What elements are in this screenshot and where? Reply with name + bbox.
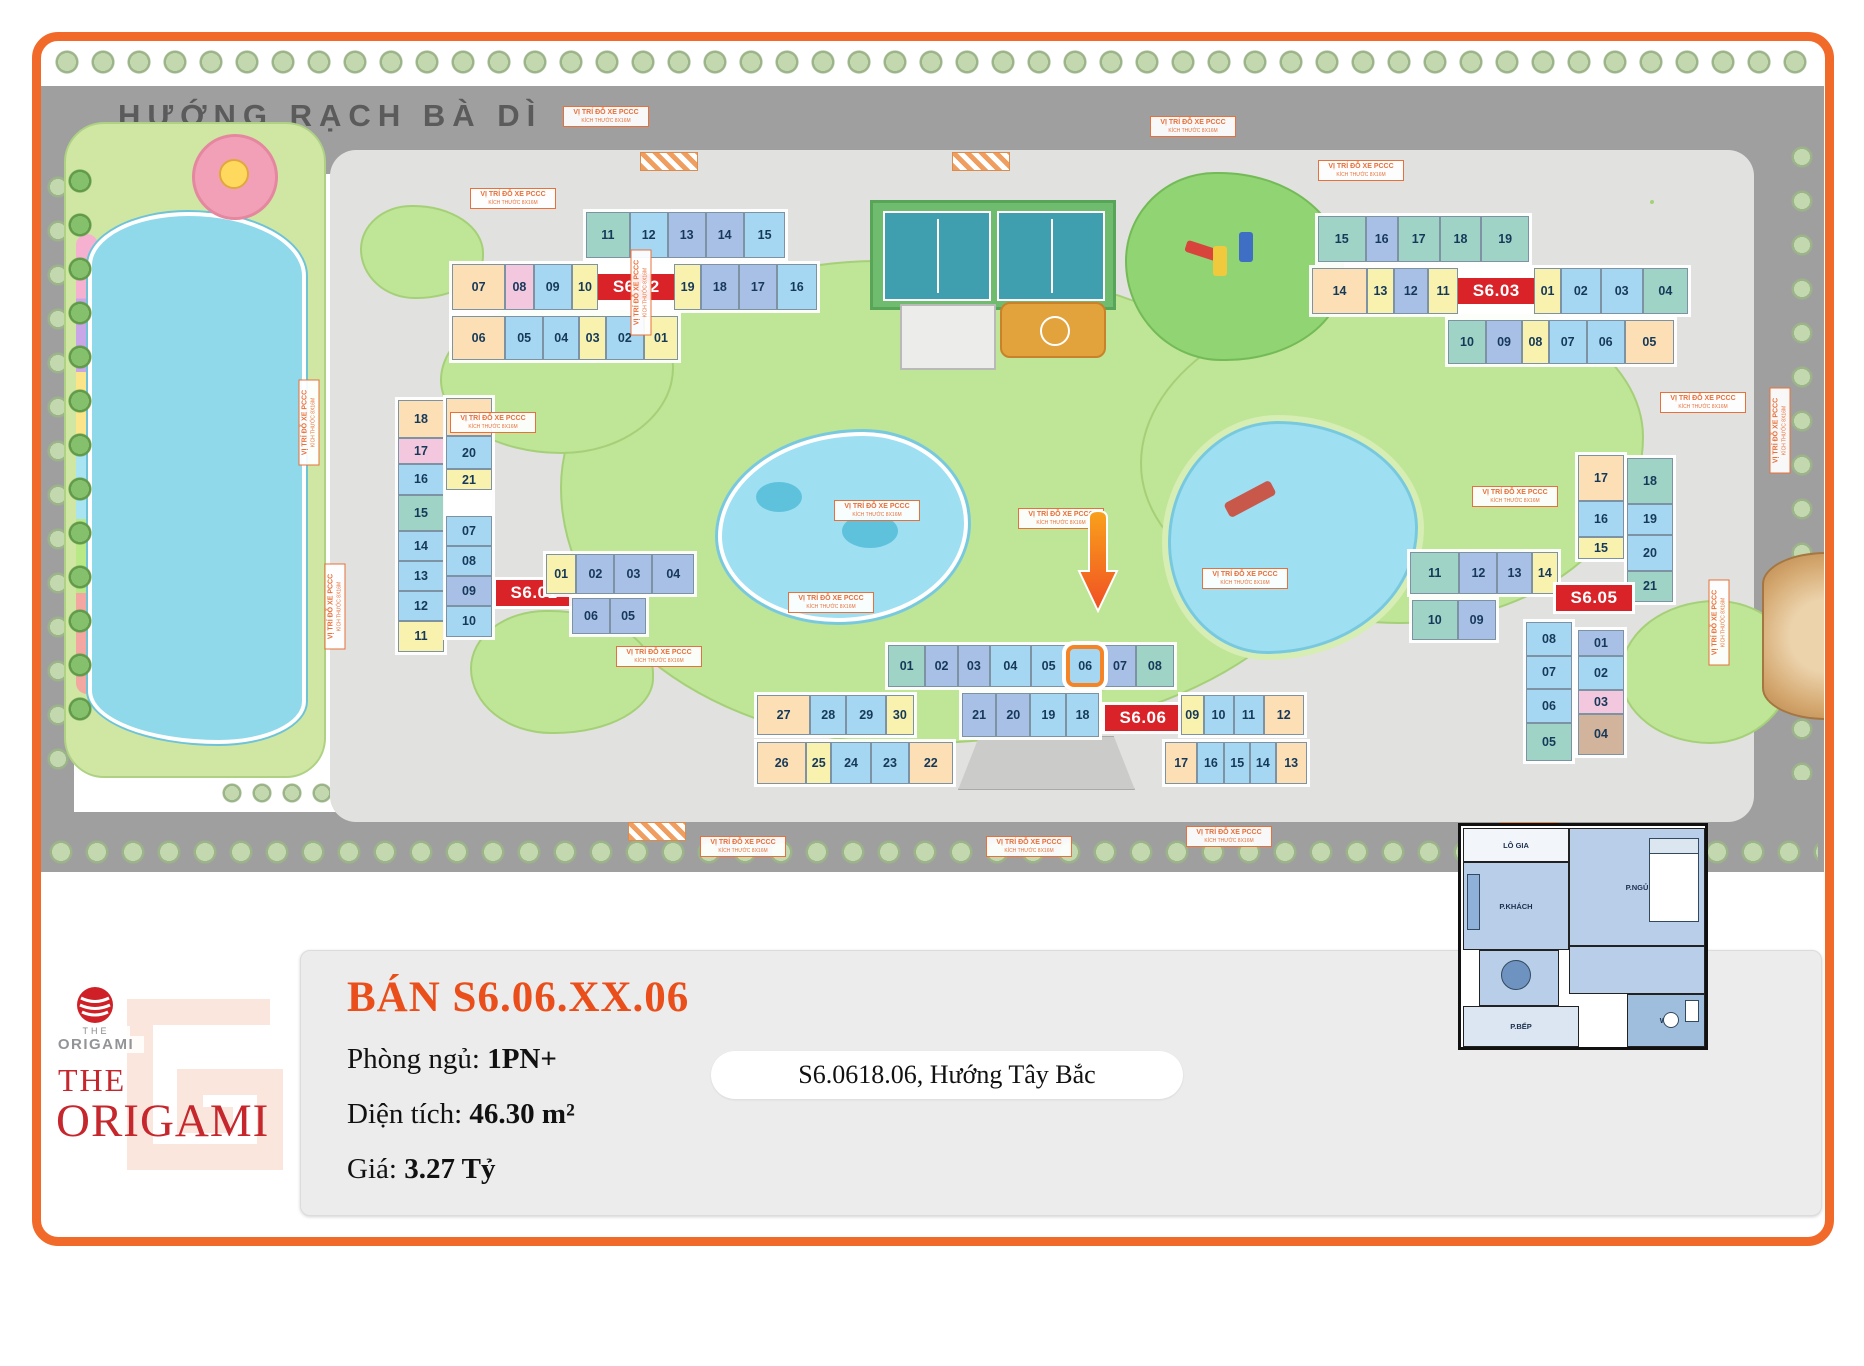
unit-S6.03-17[interactable]: 17 <box>1398 216 1440 262</box>
unit-S6.05-02[interactable]: 02 <box>1578 656 1624 690</box>
room-P.BẾP: P.BẾP <box>1463 1006 1579 1047</box>
unit-S6.02-11[interactable]: 11 <box>586 212 630 258</box>
pccc-parking-box: VỊ TRÍ ĐỖ XE PCCCKÍCH THƯỚC 8X16M <box>631 250 652 336</box>
building-s606-group-6: 1716151413 <box>1165 742 1307 784</box>
unit-S6.03-02[interactable]: 02 <box>1561 268 1601 314</box>
unit-S6.01-06[interactable]: 06 <box>572 598 610 634</box>
unit-S6.03-16[interactable]: 16 <box>1366 216 1398 262</box>
building-gap <box>446 490 492 515</box>
building-s606-group-3: S6.06 <box>1105 705 1181 731</box>
building-label-s603: S6.03 <box>1458 278 1534 304</box>
unit-S6.03-11[interactable]: 11 <box>1428 268 1458 314</box>
pccc-parking-box: VỊ TRÍ ĐỖ XE PCCCKÍCH THƯỚC 8X16M <box>1186 826 1272 847</box>
pccc-parking-box: VỊ TRÍ ĐỖ XE PCCCKÍCH THƯỚC 8X16M <box>1150 116 1236 137</box>
unit-S6.05-03[interactable]: 03 <box>1578 690 1624 714</box>
unit-S6.05-17[interactable]: 17 <box>1578 455 1624 501</box>
unit-S6.02-14[interactable]: 14 <box>706 212 744 258</box>
pccc-parking-box: VỊ TRÍ ĐỖ XE PCCCKÍCH THƯỚC 8X16M <box>1660 392 1746 413</box>
unit-S6.03-12[interactable]: 12 <box>1394 268 1428 314</box>
pccc-parking-box: VỊ TRÍ ĐỖ XE PCCCKÍCH THƯỚC 8X16M <box>1472 486 1558 507</box>
unit-S6.03-15[interactable]: 15 <box>1318 216 1366 262</box>
unit-S6.05-18[interactable]: 18 <box>1627 458 1673 504</box>
pccc-parking-box: VỊ TRÍ ĐỖ XE PCCCKÍCH THƯỚC 8X16M <box>700 836 786 857</box>
origami-logo-icon <box>76 986 114 1024</box>
unit-S6.05-14[interactable]: 14 <box>1532 552 1559 594</box>
pccc-parking-box: VỊ TRÍ ĐỖ XE PCCCKÍCH THƯỚC 8X16M <box>563 106 649 127</box>
unit-S6.06-27[interactable]: 27 <box>757 695 810 735</box>
unit-S6.03-18[interactable]: 18 <box>1440 216 1482 262</box>
unit-fields: Phòng ngủ: 1PN+Diện tích: 46.30 m²Giá: 3… <box>347 1043 575 1208</box>
unit-S6.02-18[interactable]: 18 <box>701 264 739 310</box>
unit-S6.01-12[interactable]: 12 <box>398 591 444 621</box>
unit-S6.01-21[interactable]: 21 <box>446 469 492 491</box>
building-s605-group-1: 1009 <box>1412 600 1496 640</box>
wc-sink <box>1685 1000 1699 1022</box>
unit-S6.06-06[interactable]: 06 <box>1066 645 1103 687</box>
pccc-parking-box: VỊ TRÍ ĐỖ XE PCCCKÍCH THƯỚC 8X16M <box>1709 580 1730 666</box>
building-s601-group-1: 19202107080910 <box>446 398 492 637</box>
unit-S6.02-07[interactable]: 07 <box>452 264 505 310</box>
unit-S6.05-05[interactable]: 05 <box>1526 723 1572 761</box>
unit-S6.06-16[interactable]: 16 <box>1197 742 1224 784</box>
building-s601-group-4: 0605 <box>572 598 646 634</box>
unit-S6.06-15[interactable]: 15 <box>1224 742 1250 784</box>
unit-S6.03-08[interactable]: 08 <box>1522 320 1549 364</box>
pccc-parking-box: VỊ TRÍ ĐỖ XE PCCCKÍCH THƯỚC 8X16M <box>986 836 1072 857</box>
unit-S6.01-05[interactable]: 05 <box>610 598 646 634</box>
tennis-court-1 <box>883 211 991 301</box>
unit-S6.03-14[interactable]: 14 <box>1312 268 1367 314</box>
sofa-furniture <box>1467 874 1480 930</box>
floorplan-thumbnail[interactable]: LÔ GIAP.NGỦP.KHÁCHP.ĂNP.BẾPWC <box>1458 823 1708 1050</box>
unit-S6.06-25[interactable]: 25 <box>806 742 831 784</box>
unit-S6.06-02[interactable]: 02 <box>925 645 957 687</box>
building-label-s606: S6.06 <box>1105 705 1181 731</box>
building-s606-group-0: 0102030405060708 <box>888 645 1174 687</box>
pccc-parking-box: VỊ TRÍ ĐỖ XE PCCCKÍCH THƯỚC 8X16M <box>450 412 536 433</box>
unit-S6.02-08[interactable]: 08 <box>505 264 534 310</box>
clubhouse <box>900 304 996 370</box>
unit-S6.01-08[interactable]: 08 <box>446 546 492 576</box>
unit-S6.05-06[interactable]: 06 <box>1526 689 1572 723</box>
unit-S6.06-12[interactable]: 12 <box>1264 695 1305 735</box>
site-map[interactable]: HƯỚNG RẠCH BÀ DÌ <box>40 40 1824 908</box>
unit-S6.05-08[interactable]: 08 <box>1526 622 1572 656</box>
unit-S6.06-09[interactable]: 09 <box>1181 695 1204 735</box>
unit-S6.06-29[interactable]: 29 <box>846 695 886 735</box>
unit-S6.03-01[interactable]: 01 <box>1534 268 1561 314</box>
unit-S6.06-10[interactable]: 10 <box>1204 695 1234 735</box>
road-crossing <box>952 152 1010 171</box>
unit-S6.05-13[interactable]: 13 <box>1497 552 1531 594</box>
unit-S6.05-20[interactable]: 20 <box>1627 535 1673 571</box>
field-row: Giá: 3.27 Tỷ <box>347 1153 575 1186</box>
basketball-court <box>1000 302 1106 358</box>
building-s601-group-3: 01020304 <box>546 554 694 594</box>
unit-S6.06-26[interactable]: 26 <box>757 742 806 784</box>
unit-S6.06-01[interactable]: 01 <box>888 645 925 687</box>
pccc-parking-box: VỊ TRÍ ĐỖ XE PCCCKÍCH THƯỚC 8X16M <box>299 380 320 466</box>
unit-S6.01-13[interactable]: 13 <box>398 561 444 591</box>
building-s605-group-2: 171615 <box>1578 455 1624 559</box>
building-s606-group-2: 21201918 <box>962 693 1099 737</box>
room-LÔ GIA: LÔ GIA <box>1463 828 1569 862</box>
unit-S6.03-05[interactable]: 05 <box>1625 320 1674 364</box>
room-area <box>1569 946 1705 994</box>
unit-S6.06-23[interactable]: 23 <box>871 742 909 784</box>
unit-S6.02-13[interactable]: 13 <box>668 212 706 258</box>
building-s605-group-0: 11121314 <box>1410 552 1558 594</box>
unit-S6.06-20[interactable]: 20 <box>996 693 1030 737</box>
unit-S6.02-15[interactable]: 15 <box>744 212 786 258</box>
dining-table <box>1501 960 1531 990</box>
wordmark-origami: ORIGAMI <box>56 1094 269 1148</box>
building-label-s605: S6.05 <box>1556 585 1632 611</box>
unit-S6.01-17[interactable]: 17 <box>398 438 444 463</box>
unit-S6.01-16[interactable]: 16 <box>398 464 444 495</box>
unit-S6.02-17[interactable]: 17 <box>739 264 777 310</box>
logo-small-the: THE <box>62 1026 130 1036</box>
unit-S6.01-11[interactable]: 11 <box>398 621 444 652</box>
unit-S6.05-16[interactable]: 16 <box>1578 501 1624 537</box>
tree-row-top <box>52 48 1812 82</box>
building-s601-group-0: 1817161514131211 <box>398 400 444 652</box>
unit-S6.03-19[interactable]: 19 <box>1481 216 1529 262</box>
unit-S6.01-03[interactable]: 03 <box>614 554 652 594</box>
building-s603-group-2: 100908070605 <box>1448 320 1674 364</box>
parking-ramp <box>958 736 1135 790</box>
unit-S6.02-09[interactable]: 09 <box>534 264 572 310</box>
unit-S6.05-01[interactable]: 01 <box>1578 630 1624 656</box>
pccc-parking-box: VỊ TRÍ ĐỖ XE PCCCKÍCH THƯỚC 8X16M <box>325 564 346 650</box>
unit-S6.01-20[interactable]: 20 <box>446 436 492 468</box>
unit-info-pill: S6.0618.06, Hướng Tây Bắc <box>711 1051 1183 1099</box>
tennis-courts <box>870 200 1116 310</box>
unit-S6.06-04[interactable]: 04 <box>990 645 1031 687</box>
origami-master-plan-page: HƯỚNG RẠCH BÀ DÌ <box>0 0 1864 1366</box>
unit-S6.05-21[interactable]: 21 <box>1627 571 1673 602</box>
unit-S6.02-19[interactable]: 19 <box>674 264 701 310</box>
unit-S6.01-14[interactable]: 14 <box>398 531 444 561</box>
unit-S6.06-24[interactable]: 24 <box>831 742 871 784</box>
pccc-parking-box: VỊ TRÍ ĐỖ XE PCCCKÍCH THƯỚC 8X16M <box>834 500 920 521</box>
unit-S6.01-07[interactable]: 07 <box>446 516 492 546</box>
unit-S6.06-08[interactable]: 08 <box>1136 645 1173 687</box>
unit-S6.06-30[interactable]: 30 <box>886 695 913 735</box>
logo-small-origami: ORIGAMI <box>48 1036 144 1053</box>
unit-S6.02-03[interactable]: 03 <box>579 316 606 360</box>
unit-S6.05-09[interactable]: 09 <box>1458 600 1496 640</box>
unit-S6.01-02[interactable]: 02 <box>576 554 614 594</box>
unit-S6.06-03[interactable]: 03 <box>958 645 990 687</box>
unit-S6.06-07[interactable]: 07 <box>1104 645 1136 687</box>
building-s606-group-4: 09101112 <box>1181 695 1304 735</box>
building-s606-group-5: 2625242322 <box>757 742 953 784</box>
building-s603-group-0: 1516171819 <box>1318 216 1529 262</box>
park-lake <box>88 212 306 744</box>
unit-S6.05-12[interactable]: 12 <box>1459 552 1497 594</box>
pccc-parking-box: VỊ TRÍ ĐỖ XE PCCCKÍCH THƯỚC 8X16M <box>788 592 874 613</box>
unit-S6.02-06[interactable]: 06 <box>452 316 505 360</box>
pccc-parking-box: VỊ TRÍ ĐỖ XE PCCCKÍCH THƯỚC 8X16M <box>1202 568 1288 589</box>
wc-fixture <box>1663 1012 1679 1028</box>
unit-S6.01-18[interactable]: 18 <box>398 400 444 438</box>
building-s605-group-3: 18192021 <box>1627 458 1673 602</box>
unit-S6.06-21[interactable]: 21 <box>962 693 996 737</box>
unit-S6.01-09[interactable]: 09 <box>446 576 492 606</box>
unit-S6.05-07[interactable]: 07 <box>1526 656 1572 690</box>
unit-S6.06-17[interactable]: 17 <box>1165 742 1197 784</box>
unit-S6.03-13[interactable]: 13 <box>1367 268 1394 314</box>
tennis-court-2 <box>997 211 1105 301</box>
unit-S6.06-19[interactable]: 19 <box>1030 693 1066 737</box>
pccc-parking-box: VỊ TRÍ ĐỖ XE PCCCKÍCH THƯỚC 8X16M <box>470 188 556 209</box>
unit-S6.02-05[interactable]: 05 <box>505 316 543 360</box>
unit-S6.06-11[interactable]: 11 <box>1234 695 1264 735</box>
unit-S6.05-11[interactable]: 11 <box>1410 552 1459 594</box>
dome-structure <box>1762 552 1824 720</box>
unit-S6.06-18[interactable]: 18 <box>1066 693 1098 737</box>
building-s602-group-0: 1112131415 <box>586 212 785 258</box>
unit-S6.03-07[interactable]: 07 <box>1549 320 1587 364</box>
pccc-parking-box: VỊ TRÍ ĐỖ XE PCCCKÍCH THƯỚC 8X16M <box>1318 160 1404 181</box>
building-s605-group-4: S6.05 <box>1556 585 1632 611</box>
unit-S6.03-06[interactable]: 06 <box>1587 320 1625 364</box>
unit-S6.05-04[interactable]: 04 <box>1578 714 1624 755</box>
unit-S6.01-15[interactable]: 15 <box>398 495 444 531</box>
unit-S6.05-19[interactable]: 19 <box>1627 504 1673 535</box>
pccc-parking-box: VỊ TRÍ ĐỖ XE PCCCKÍCH THƯỚC 8X16M <box>1770 388 1791 474</box>
bed-pillow <box>1649 838 1699 854</box>
unit-S6.06-13[interactable]: 13 <box>1276 742 1307 784</box>
park-playground <box>192 134 278 220</box>
unit-S6.06-05[interactable]: 05 <box>1031 645 1067 687</box>
building-s605-group-6: 01020304 <box>1578 630 1624 755</box>
unit-S6.06-28[interactable]: 28 <box>810 695 846 735</box>
unit-S6.03-09[interactable]: 09 <box>1486 320 1522 364</box>
pccc-parking-box: VỊ TRÍ ĐỖ XE PCCCKÍCH THƯỚC 8X16M <box>616 646 702 667</box>
unit-S6.02-10[interactable]: 10 <box>572 264 599 310</box>
unit-S6.03-04[interactable]: 04 <box>1643 268 1689 314</box>
building-s606-group-1: 27282930 <box>757 695 914 735</box>
unit-S6.03-03[interactable]: 03 <box>1601 268 1643 314</box>
unit-S6.05-15[interactable]: 15 <box>1578 537 1624 560</box>
unit-S6.02-04[interactable]: 04 <box>543 316 579 360</box>
unit-S6.05-10[interactable]: 10 <box>1412 600 1458 640</box>
field-row: Diện tích: 46.30 m² <box>347 1098 575 1131</box>
road-crossing <box>628 822 686 841</box>
building-s603-group-1: 14131211S6.0301020304 <box>1312 268 1688 314</box>
unit-S6.03-10[interactable]: 10 <box>1448 320 1486 364</box>
unit-S6.01-01[interactable]: 01 <box>546 554 576 594</box>
left-park <box>64 122 326 778</box>
northeast-garden <box>1650 200 1654 204</box>
unit-S6.01-04[interactable]: 04 <box>652 554 694 594</box>
unit-S6.02-16[interactable]: 16 <box>777 264 817 310</box>
road-crossing <box>640 152 698 171</box>
unit-S6.01-10[interactable]: 10 <box>446 606 492 637</box>
unit-S6.06-22[interactable]: 22 <box>909 742 953 784</box>
park-tree-column <box>66 164 96 724</box>
unit-S6.06-14[interactable]: 14 <box>1250 742 1276 784</box>
listing-title: BÁN S6.06.XX.06 <box>347 973 689 1022</box>
building-s605-group-5: 08070605 <box>1526 622 1572 761</box>
field-row: Phòng ngủ: 1PN+ <box>347 1043 575 1076</box>
selected-unit-arrow-icon <box>1076 508 1120 613</box>
